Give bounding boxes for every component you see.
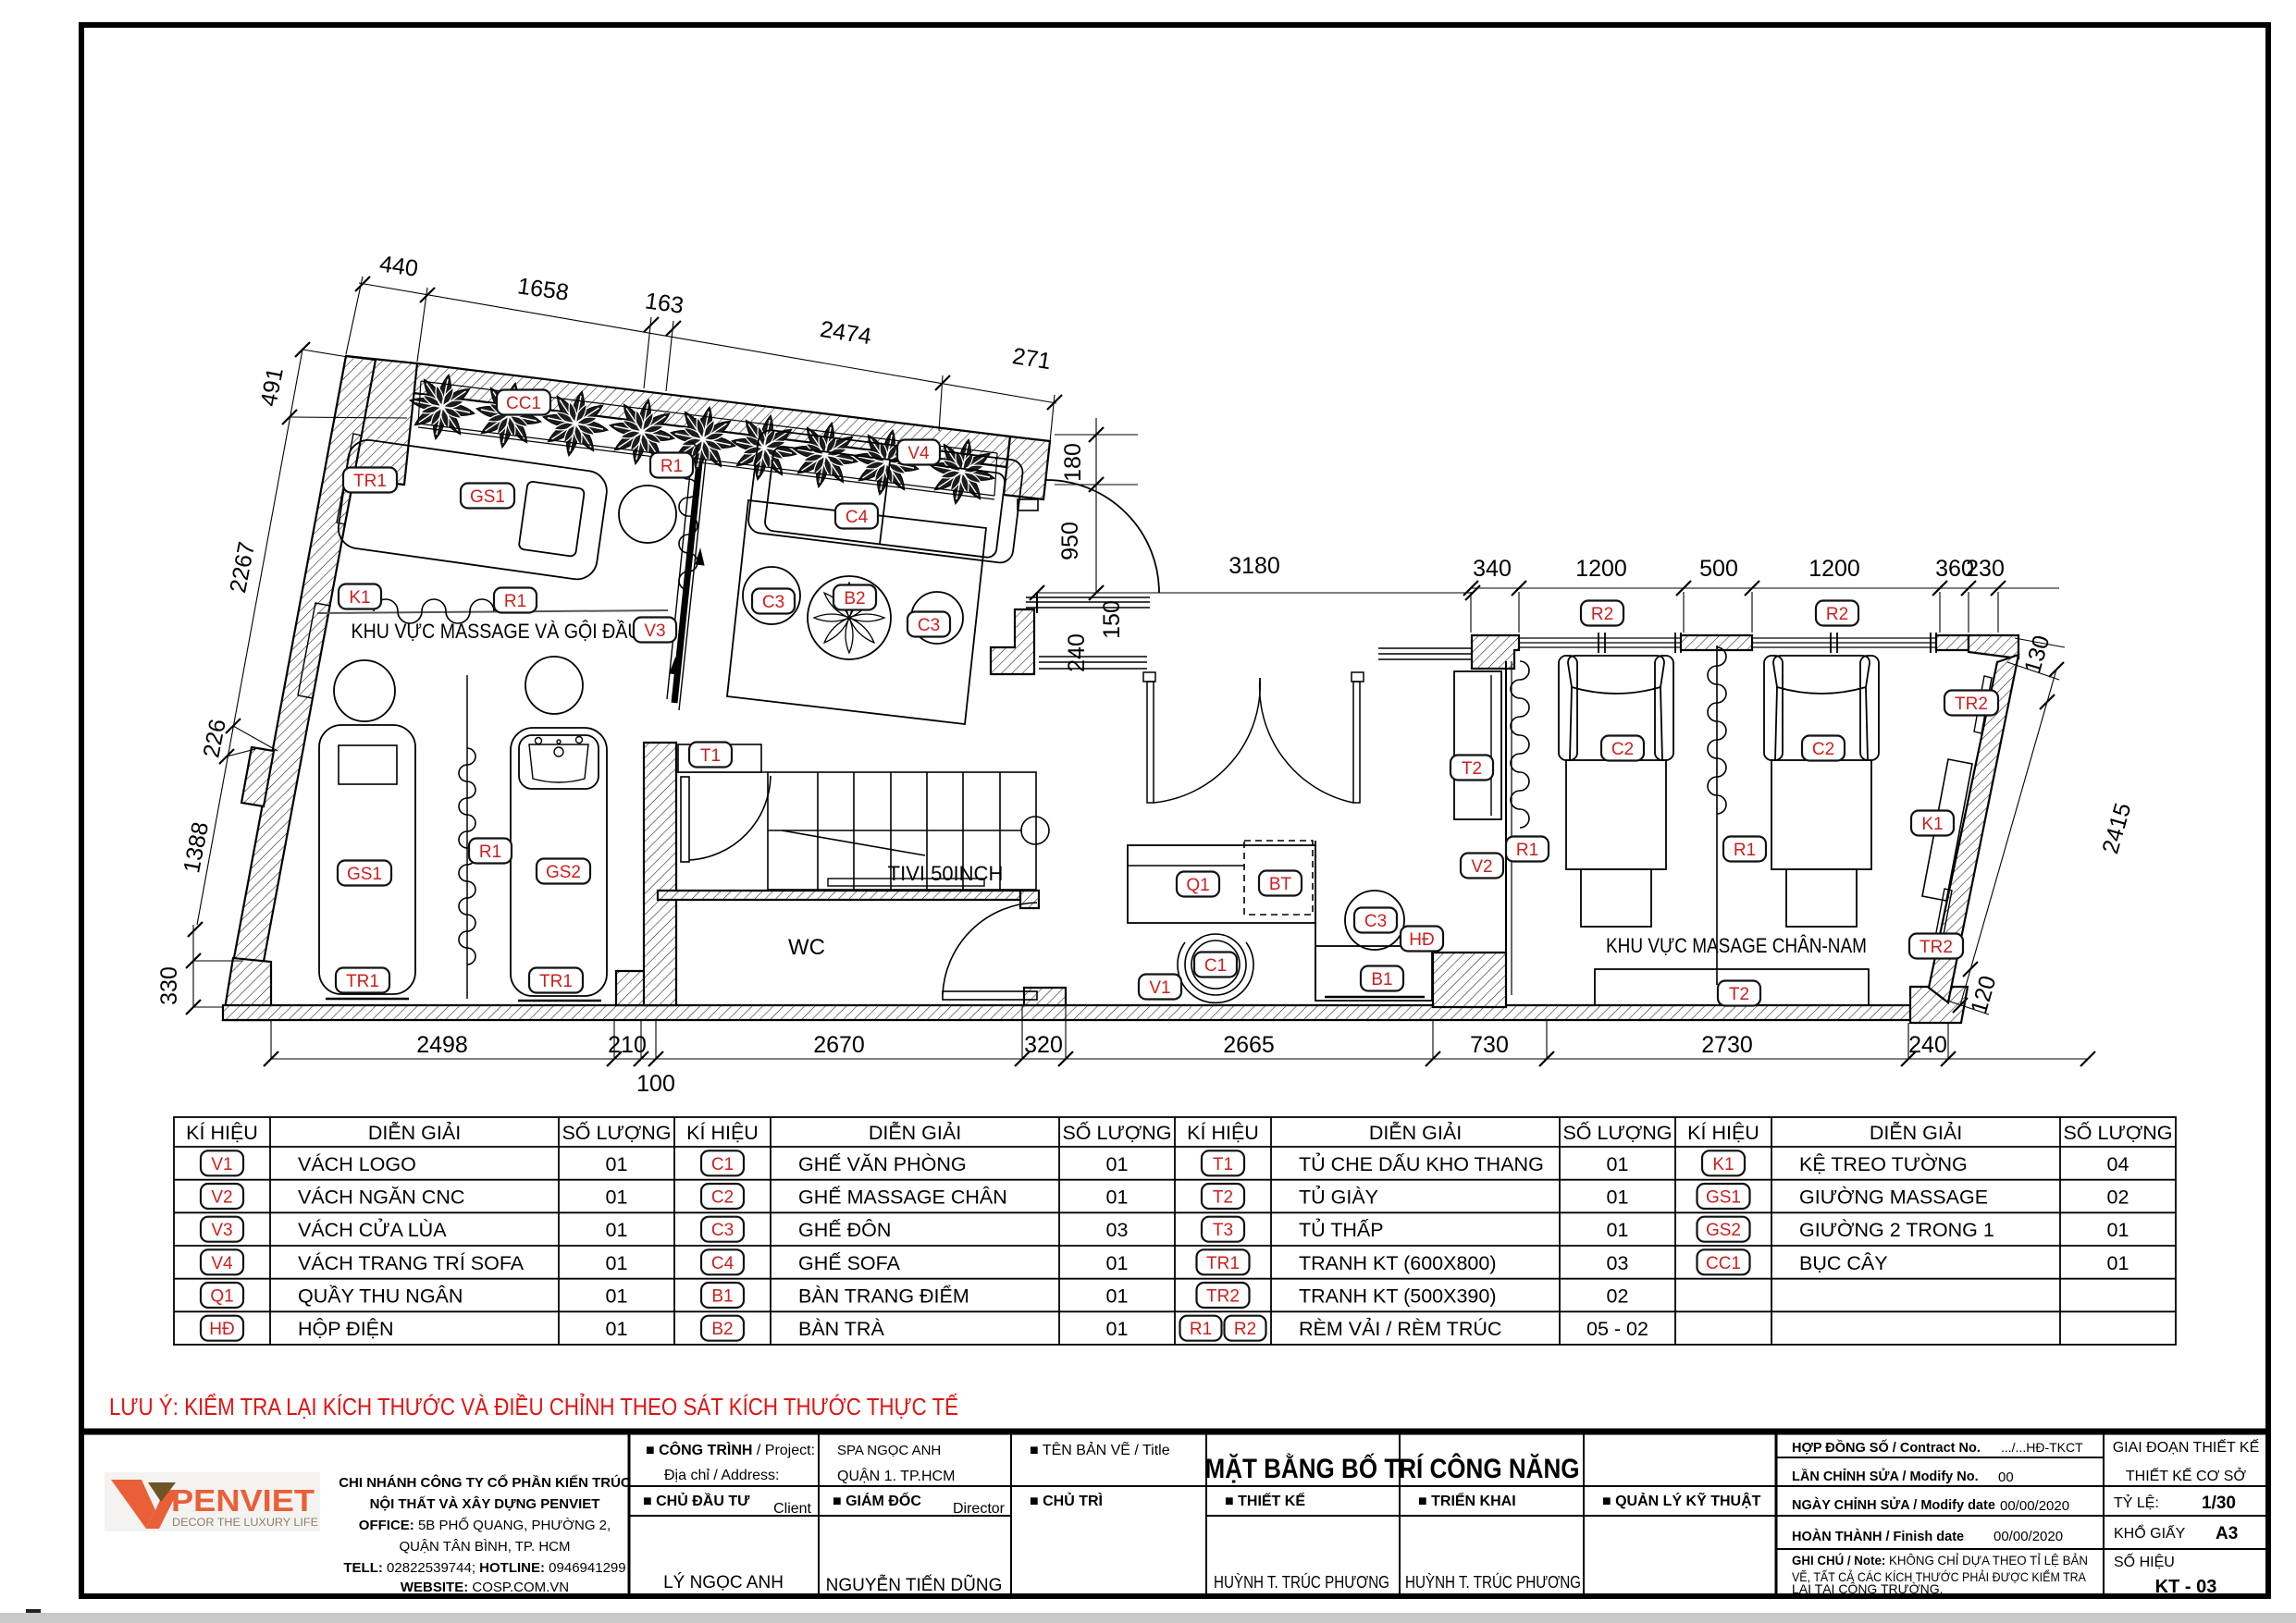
svg-text:NGÀY CHỈNH SỬA / Modify date: NGÀY CHỈNH SỬA / Modify date (1792, 1496, 1995, 1513)
svg-text:TỦ GIÀY: TỦ GIÀY (1299, 1186, 1378, 1209)
svg-text:340: 340 (1473, 556, 1512, 582)
svg-text:C3: C3 (1364, 912, 1387, 931)
svg-text:C3: C3 (918, 616, 940, 635)
svg-text:DIỄN GIẢI: DIỄN GIẢI (869, 1120, 961, 1144)
svg-text:01: 01 (1607, 1153, 1629, 1175)
svg-text:HỘP ĐIỆN: HỘP ĐIỆN (298, 1317, 394, 1340)
svg-text:01: 01 (1607, 1219, 1629, 1241)
svg-text:KT - 03: KT - 03 (2155, 1577, 2217, 1597)
svg-text:2665: 2665 (1223, 1032, 1275, 1058)
svg-text:WEBSITE: COSP.COM.VN: WEBSITE: COSP.COM.VN (401, 1580, 569, 1595)
svg-text:TRANH KT (500X390): TRANH KT (500X390) (1299, 1285, 1497, 1308)
svg-text:TỦ THẤP: TỦ THẤP (1299, 1218, 1384, 1241)
svg-text:LẦN CHỈNH SỬA / Modify No.: LẦN CHỈNH SỬA / Modify No. (1792, 1468, 1979, 1484)
svg-text:K1: K1 (349, 588, 370, 608)
svg-text:THIẾT KẾ CƠ SỞ: THIẾT KẾ CƠ SỞ (2126, 1467, 2247, 1484)
svg-text:V4: V4 (907, 444, 930, 463)
svg-text:Địa chỉ / Address:: Địa chỉ / Address: (664, 1468, 780, 1483)
svg-text:180: 180 (1060, 443, 1086, 482)
svg-text:QUẬN 1. TP.HCM: QUẬN 1. TP.HCM (837, 1467, 955, 1484)
svg-text:TR1: TR1 (346, 972, 379, 991)
svg-text:DECOR THE LUXURY LIFE: DECOR THE LUXURY LIFE (172, 1518, 318, 1529)
svg-text:230: 230 (1966, 556, 2005, 582)
svg-text:R1: R1 (1190, 1320, 1212, 1339)
svg-text:■ CHỦ TRÌ: ■ CHỦ TRÌ (1030, 1492, 1103, 1509)
svg-text:TỦ CHE DẤU KHO THANG: TỦ CHE DẤU KHO THANG (1299, 1152, 1544, 1175)
svg-text:TR2: TR2 (1955, 695, 1988, 714)
svg-text:QUẦY THU NGÂN: QUẦY THU NGÂN (298, 1285, 463, 1308)
svg-text:02: 02 (1607, 1285, 1629, 1308)
svg-text:GHẾ SOFA: GHẾ SOFA (798, 1251, 901, 1274)
svg-text:01: 01 (1106, 1187, 1129, 1209)
svg-text:R1: R1 (1516, 841, 1538, 860)
svg-text:00/00/2020: 00/00/2020 (1994, 1529, 2063, 1544)
svg-text:SỐ LƯỢNG: SỐ LƯỢNG (1562, 1120, 1672, 1144)
svg-text:GHẾ VĂN PHÒNG: GHẾ VĂN PHÒNG (798, 1152, 967, 1175)
svg-text:LƯU Ý: KIỂM TRA LẠI KÍCH THƯỚC: LƯU Ý: KIỂM TRA LẠI KÍCH THƯỚC VÀ ĐIỀU C… (109, 1393, 958, 1420)
svg-text:100: 100 (636, 1071, 675, 1097)
svg-text:BÀN TRÀ: BÀN TRÀ (798, 1317, 884, 1340)
svg-text:01: 01 (1106, 1153, 1129, 1175)
svg-text:V4: V4 (211, 1254, 233, 1273)
svg-text:T2: T2 (1213, 1188, 1233, 1208)
svg-text:R1: R1 (1734, 841, 1756, 860)
svg-text:TRANH KT (600X800): TRANH KT (600X800) (1299, 1252, 1497, 1274)
svg-text:V1: V1 (1149, 978, 1170, 998)
svg-text:LẠI TẠI CÔNG TRƯỜNG.: LẠI TẠI CÔNG TRƯỜNG. (1792, 1581, 1943, 1596)
svg-text:320: 320 (1024, 1032, 1063, 1058)
svg-text:950: 950 (1057, 522, 1083, 560)
svg-text:00/00/2020: 00/00/2020 (2000, 1498, 2069, 1514)
svg-text:GIƯỜNG MASSAGE: GIƯỜNG MASSAGE (1799, 1186, 1988, 1209)
svg-text:■ TRIỂN KHAI: ■ TRIỂN KHAI (1418, 1492, 1516, 1509)
svg-text:2670: 2670 (813, 1032, 865, 1058)
svg-text:KÍ HIỆU: KÍ HIỆU (1187, 1121, 1259, 1144)
svg-text:KÍ HIỆU: KÍ HIỆU (1687, 1121, 1759, 1144)
svg-text:HỢP ĐỒNG SỐ / Contract No.: HỢP ĐỒNG SỐ / Contract No. (1792, 1439, 1981, 1456)
svg-text:K1: K1 (1921, 815, 1943, 834)
svg-text:TR2: TR2 (1920, 938, 1953, 957)
svg-text:01: 01 (1106, 1318, 1129, 1340)
svg-text:C4: C4 (711, 1254, 734, 1273)
svg-text:CC1: CC1 (506, 394, 541, 413)
svg-text:HUỲNH T. TRÚC PHƯƠNG: HUỲNH T. TRÚC PHƯƠNG (1405, 1572, 1581, 1592)
svg-text:01: 01 (606, 1252, 628, 1274)
svg-text:HOÀN THÀNH / Finish date: HOÀN THÀNH / Finish date (1792, 1529, 1964, 1544)
svg-text:GS2: GS2 (1706, 1221, 1741, 1240)
svg-text:03: 03 (1106, 1219, 1129, 1241)
svg-text:01: 01 (606, 1187, 628, 1209)
svg-text:GHI CHÚ / Note: KHÔNG CHỈ DỰA: GHI CHÚ / Note: KHÔNG CHỈ DỰA THEO TỈ LỆ… (1792, 1552, 2088, 1568)
svg-text:R2: R2 (1826, 605, 1848, 624)
svg-text:.../...HĐ-TKCT: .../...HĐ-TKCT (2001, 1440, 2083, 1455)
svg-text:C2: C2 (711, 1188, 734, 1208)
svg-text:01: 01 (606, 1285, 628, 1308)
svg-text:01: 01 (1607, 1187, 1629, 1209)
svg-text:C3: C3 (762, 593, 784, 612)
svg-text:C4: C4 (846, 508, 869, 527)
svg-text:01: 01 (606, 1153, 628, 1175)
svg-text:1200: 1200 (1808, 556, 1860, 582)
svg-text:TR1: TR1 (539, 972, 573, 991)
svg-text:3180: 3180 (1228, 553, 1280, 579)
svg-text:LÝ NGỌC ANH: LÝ NGỌC ANH (663, 1573, 784, 1592)
svg-text:RÈM VẢI / RÈM TRÚC: RÈM VẢI / RÈM TRÚC (1299, 1317, 1501, 1340)
svg-text:01: 01 (1106, 1285, 1129, 1308)
svg-text:01: 01 (2107, 1252, 2129, 1274)
svg-text:A3: A3 (2216, 1524, 2238, 1543)
svg-text:T1: T1 (1213, 1155, 1233, 1174)
svg-text:C2: C2 (1611, 740, 1634, 759)
svg-text:C2: C2 (1812, 740, 1834, 759)
svg-text:VÁCH TRANG TRÍ SOFA: VÁCH TRANG TRÍ SOFA (298, 1251, 525, 1274)
svg-text:GS1: GS1 (470, 487, 505, 507)
svg-text:WC: WC (788, 935, 825, 960)
svg-text:■ QUẢN LÝ KỸ THUẬT: ■ QUẢN LÝ KỸ THUẬT (1602, 1491, 1761, 1509)
svg-text:500: 500 (1699, 556, 1738, 582)
svg-text:2730: 2730 (1701, 1032, 1753, 1058)
svg-text:SỐ LƯỢNG: SỐ LƯỢNG (2063, 1120, 2172, 1144)
svg-text:B1: B1 (711, 1287, 733, 1307)
svg-text:R2: R2 (1234, 1320, 1256, 1339)
svg-text:T3: T3 (1213, 1221, 1233, 1240)
svg-text:V2: V2 (211, 1188, 232, 1208)
svg-text:04: 04 (2107, 1153, 2129, 1175)
svg-text:B2: B2 (711, 1320, 733, 1339)
svg-text:163: 163 (644, 288, 685, 319)
svg-text:V3: V3 (644, 621, 665, 641)
svg-text:01: 01 (606, 1318, 628, 1340)
svg-text:HUỲNH T. TRÚC PHƯƠNG: HUỲNH T. TRÚC PHƯƠNG (1214, 1572, 1389, 1592)
svg-text:OFFICE: 5B PHỔ QUANG, PHƯỜNG: OFFICE: 5B PHỔ QUANG, PHƯỜNG 2, (359, 1517, 611, 1533)
svg-text:V1: V1 (211, 1155, 232, 1174)
svg-text:CHI NHÁNH CÔNG TY CỔ PHẦN KIẾN: CHI NHÁNH CÔNG TY CỔ PHẦN KIẾN TRÚC (339, 1474, 631, 1491)
svg-text:GIAI ĐOẠN THIẾT KẾ: GIAI ĐOẠN THIẾT KẾ (2113, 1438, 2260, 1456)
svg-text:05 - 02: 05 - 02 (1586, 1318, 1648, 1340)
svg-text:VÁCH CỬA LÙA: VÁCH CỬA LÙA (298, 1218, 447, 1241)
svg-text:Q1: Q1 (1186, 876, 1209, 895)
svg-text:GS1: GS1 (1706, 1188, 1741, 1208)
svg-text:NGUYỄN TIẾN DŨNG: NGUYỄN TIẾN DŨNG (826, 1575, 1003, 1595)
svg-text:01: 01 (606, 1219, 628, 1241)
svg-text:TIVI 50INCH: TIVI 50INCH (888, 862, 1004, 885)
svg-text:HĐ: HĐ (1409, 930, 1434, 950)
svg-text:B1: B1 (1371, 970, 1392, 990)
svg-text:■ GIÁM ĐỐC: ■ GIÁM ĐỐC (833, 1491, 921, 1509)
svg-text:T2: T2 (1462, 759, 1482, 779)
svg-text:TỶ LỆ:: TỶ LỆ: (2114, 1494, 2159, 1511)
svg-text:00: 00 (1998, 1469, 2014, 1485)
svg-text:T2: T2 (1729, 985, 1749, 1004)
svg-text:V2: V2 (1471, 857, 1492, 877)
svg-text:VÁCH NGĂN CNC: VÁCH NGĂN CNC (298, 1186, 464, 1209)
svg-text:R1: R1 (660, 457, 683, 476)
svg-text:730: 730 (1470, 1032, 1509, 1058)
svg-text:R2: R2 (1591, 605, 1613, 624)
svg-text:Director: Director (953, 1501, 1006, 1517)
svg-text:GS2: GS2 (546, 863, 581, 882)
svg-text:PENVIET: PENVIET (171, 1483, 315, 1518)
svg-text:210: 210 (608, 1032, 647, 1058)
svg-text:KÍ HIỆU: KÍ HIỆU (186, 1121, 258, 1144)
svg-text:Client: Client (773, 1501, 811, 1517)
svg-text:TELL: 02822539744; HOTLINE: 0: TELL: 02822539744; HOTLINE: 0946941299 (343, 1560, 625, 1576)
svg-text:SỐ HIỆU: SỐ HIỆU (2114, 1552, 2175, 1570)
svg-text:■ THIẾT KẾ: ■ THIẾT KẾ (1225, 1492, 1305, 1509)
svg-text:QUẬN TÂN BÌNH, TP. HCM: QUẬN TÂN BÌNH, TP. HCM (399, 1539, 570, 1555)
svg-text:DIỄN GIẢI: DIỄN GIẢI (1369, 1120, 1462, 1144)
svg-text:GIƯỜNG 2 TRONG 1: GIƯỜNG 2 TRONG 1 (1799, 1218, 1994, 1241)
svg-text:03: 03 (1607, 1252, 1629, 1274)
svg-text:B2: B2 (844, 589, 865, 609)
svg-text:TR2: TR2 (1206, 1287, 1240, 1307)
svg-text:01: 01 (2107, 1219, 2129, 1241)
svg-text:V3: V3 (211, 1221, 232, 1240)
svg-text:C3: C3 (711, 1221, 734, 1240)
svg-text:R1: R1 (479, 842, 501, 862)
svg-text:C1: C1 (711, 1155, 734, 1174)
svg-text:01: 01 (1106, 1252, 1129, 1274)
svg-text:■ CÔNG TRÌNH / Project:: ■ CÔNG TRÌNH / Project: (646, 1441, 815, 1458)
svg-text:SPA NGỌC ANH: SPA NGỌC ANH (837, 1443, 941, 1458)
svg-text:02: 02 (2107, 1187, 2129, 1209)
svg-text:■ TÊN BẢN VẼ / Title: ■ TÊN BẢN VẼ / Title (1030, 1440, 1170, 1458)
svg-text:KHU VỰC MASAGE CHÂN-NAM: KHU VỰC MASAGE CHÂN-NAM (1606, 934, 1867, 957)
svg-text:■ CHỦ ĐẦU TƯ: ■ CHỦ ĐẦU TƯ (643, 1492, 750, 1509)
svg-text:GHẾ ĐÔN: GHẾ ĐÔN (798, 1218, 891, 1241)
svg-text:HĐ: HĐ (209, 1320, 234, 1339)
svg-text:T1: T1 (700, 746, 721, 766)
svg-text:VÁCH LOGO: VÁCH LOGO (298, 1152, 416, 1175)
svg-text:KỆ TREO TƯỜNG: KỆ TREO TƯỜNG (1799, 1152, 1968, 1175)
svg-text:NỘI THẤT VÀ XÂY DỰNG PENVIET: NỘI THẤT VÀ XÂY DỰNG PENVIET (370, 1495, 600, 1512)
svg-text:2498: 2498 (416, 1032, 468, 1058)
svg-text:BT: BT (1269, 875, 1292, 894)
svg-text:240: 240 (1064, 633, 1090, 672)
svg-text:GS1: GS1 (347, 865, 382, 884)
svg-text:KÍ HIỆU: KÍ HIỆU (686, 1121, 759, 1144)
svg-text:440: 440 (378, 251, 420, 282)
svg-text:SỐ LƯỢNG: SỐ LƯỢNG (1062, 1120, 1171, 1144)
svg-text:DIỄN GIẢI: DIỄN GIẢI (368, 1120, 461, 1144)
svg-text:DIỄN GIẢI: DIỄN GIẢI (1870, 1120, 1962, 1144)
svg-text:TR1: TR1 (1206, 1254, 1240, 1273)
svg-text:TR1: TR1 (353, 472, 387, 491)
svg-text:Q1: Q1 (210, 1287, 233, 1307)
svg-text:150: 150 (1099, 600, 1125, 639)
svg-text:240: 240 (1908, 1032, 1947, 1058)
svg-text:SỐ LƯỢNG: SỐ LƯỢNG (562, 1120, 671, 1144)
svg-text:330: 330 (156, 966, 182, 1005)
svg-text:K1: K1 (1712, 1155, 1734, 1174)
svg-text:CC1: CC1 (1706, 1254, 1741, 1273)
svg-text:BỤC CÂY: BỤC CÂY (1799, 1251, 1888, 1274)
svg-text:1/30: 1/30 (2202, 1494, 2236, 1513)
svg-text:KHU VỰC MASSAGE VÀ GỘI ĐẦU: KHU VỰC MASSAGE VÀ GỘI ĐẦU (352, 620, 641, 643)
svg-text:KHỔ GIẤY: KHỔ GIẤY (2114, 1524, 2186, 1542)
svg-text:MẶT BẰNG BỐ TRÍ CÔNG NĂNG: MẶT BẰNG BỐ TRÍ CÔNG NĂNG (1205, 1453, 1580, 1484)
svg-text:R1: R1 (504, 592, 526, 611)
svg-text:1200: 1200 (1575, 556, 1627, 582)
svg-text:GHẾ MASSAGE CHÂN: GHẾ MASSAGE CHÂN (798, 1186, 1007, 1209)
svg-text:C1: C1 (1204, 956, 1227, 976)
svg-text:BÀN TRANG ĐIỂM: BÀN TRANG ĐIỂM (798, 1285, 969, 1308)
